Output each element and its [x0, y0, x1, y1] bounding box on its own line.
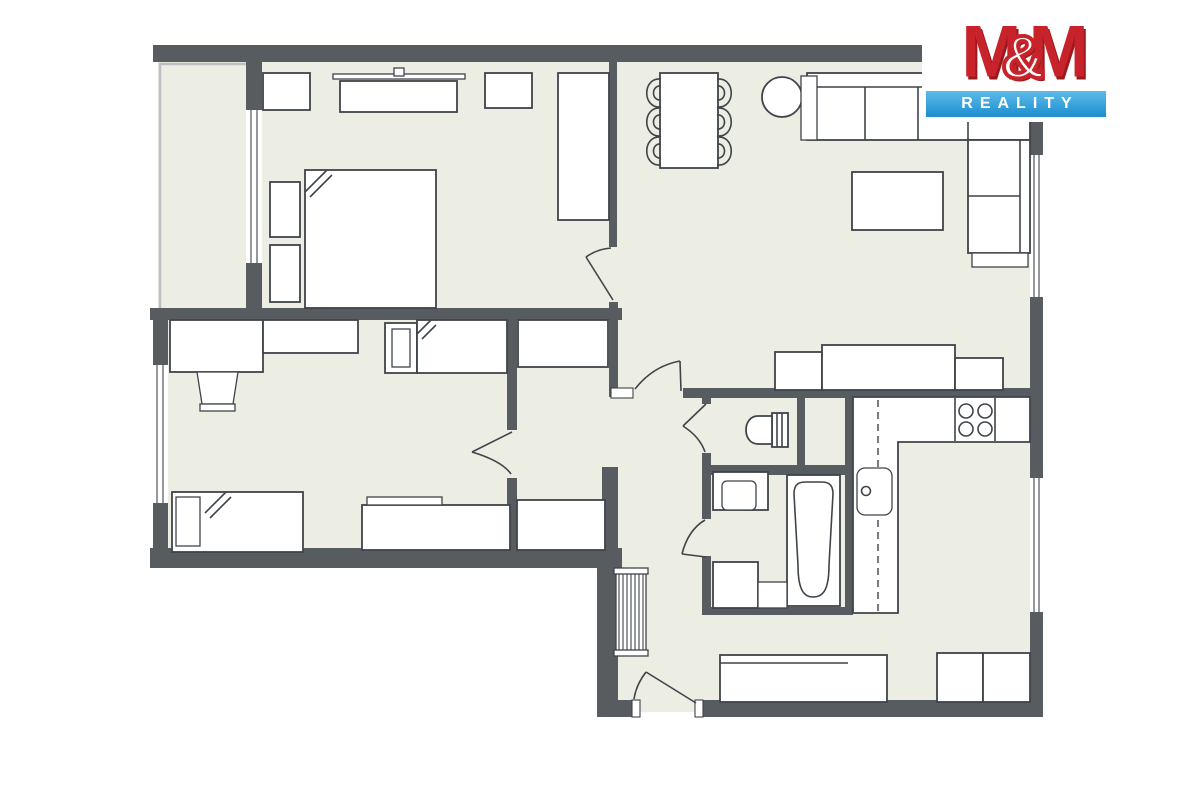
- wall-bath-left-bottom: [702, 556, 711, 615]
- sideboard-right: [955, 358, 1003, 390]
- wall-bedroom-window-top: [246, 62, 262, 110]
- threshold-hall-door: [611, 388, 633, 398]
- wall-top: [153, 45, 1043, 62]
- bedroom-wardrobe: [558, 73, 609, 220]
- tv-mount: [394, 68, 404, 76]
- living-room-window: [1030, 155, 1043, 297]
- bathroom-basin: [722, 481, 756, 510]
- toilet-tank: [772, 413, 788, 447]
- floor-plan-page: M & M REALITY: [0, 0, 1200, 800]
- hall-cabinet-1: [937, 653, 983, 702]
- sideboard-left: [775, 352, 822, 390]
- toilet-bowl: [746, 416, 772, 444]
- children-room-window: [153, 365, 168, 503]
- nightstand-1: [270, 182, 300, 237]
- dining-table: [660, 73, 718, 168]
- bedroom-cabinet-left: [263, 73, 310, 110]
- sofa-armrest: [801, 76, 817, 140]
- children-bed-pillow: [176, 497, 200, 546]
- wall-left-children-top: [153, 308, 168, 365]
- desk-chair: [197, 372, 238, 404]
- logo-reality-banner: REALITY: [926, 91, 1106, 117]
- wall-hall-left-lower: [597, 560, 618, 717]
- nightstand-2: [270, 245, 300, 302]
- bedroom-window: [246, 110, 262, 263]
- wall-bedroom-living: [609, 62, 617, 247]
- bedroom-dresser: [340, 81, 457, 112]
- logo-mm: M & M: [922, 24, 1124, 88]
- closet-dresser: [517, 500, 605, 550]
- bedroom-cabinet-right: [485, 73, 532, 108]
- wc-furniture: [746, 413, 788, 447]
- desk-chair-base: [200, 404, 235, 411]
- wall-kitchen-divider: [845, 390, 853, 615]
- bathroom-cabinet: [758, 582, 787, 608]
- closet-wardrobe: [518, 320, 608, 367]
- threshold-entrance-left: [632, 700, 640, 717]
- mm-reality-logo: M & M REALITY: [922, 24, 1124, 122]
- logo-ampersand-icon: &: [1001, 28, 1044, 88]
- sideboard-middle: [822, 345, 955, 390]
- children-bed-top: [417, 320, 507, 373]
- desk: [170, 320, 263, 372]
- wall-wc-right: [797, 393, 805, 467]
- wall-right-middle: [1030, 297, 1043, 478]
- children-dresser-bottom: [362, 505, 510, 550]
- washing-machine: [713, 562, 758, 608]
- bathtub: [787, 475, 840, 606]
- wall-closet-left-top: [507, 318, 517, 430]
- wall-wc-left-bottom: [702, 453, 711, 467]
- wall-wc-left-top: [702, 397, 711, 404]
- children-shelf: [367, 497, 442, 505]
- children-nightstand-inner: [392, 329, 410, 367]
- children-dresser-top: [263, 320, 358, 353]
- side-table-round: [762, 77, 802, 117]
- wall-mid-horizontal: [150, 308, 622, 320]
- sofa-end: [972, 253, 1028, 267]
- wall-bath-left-top: [702, 475, 711, 519]
- wall-living-low: [609, 302, 618, 397]
- radiator: [614, 568, 648, 656]
- hall-sideboard: [720, 655, 887, 702]
- hall-cabinet-2: [983, 653, 1030, 702]
- double-bed: [305, 170, 436, 308]
- coffee-table: [852, 172, 943, 230]
- kitchen-window: [1030, 478, 1043, 612]
